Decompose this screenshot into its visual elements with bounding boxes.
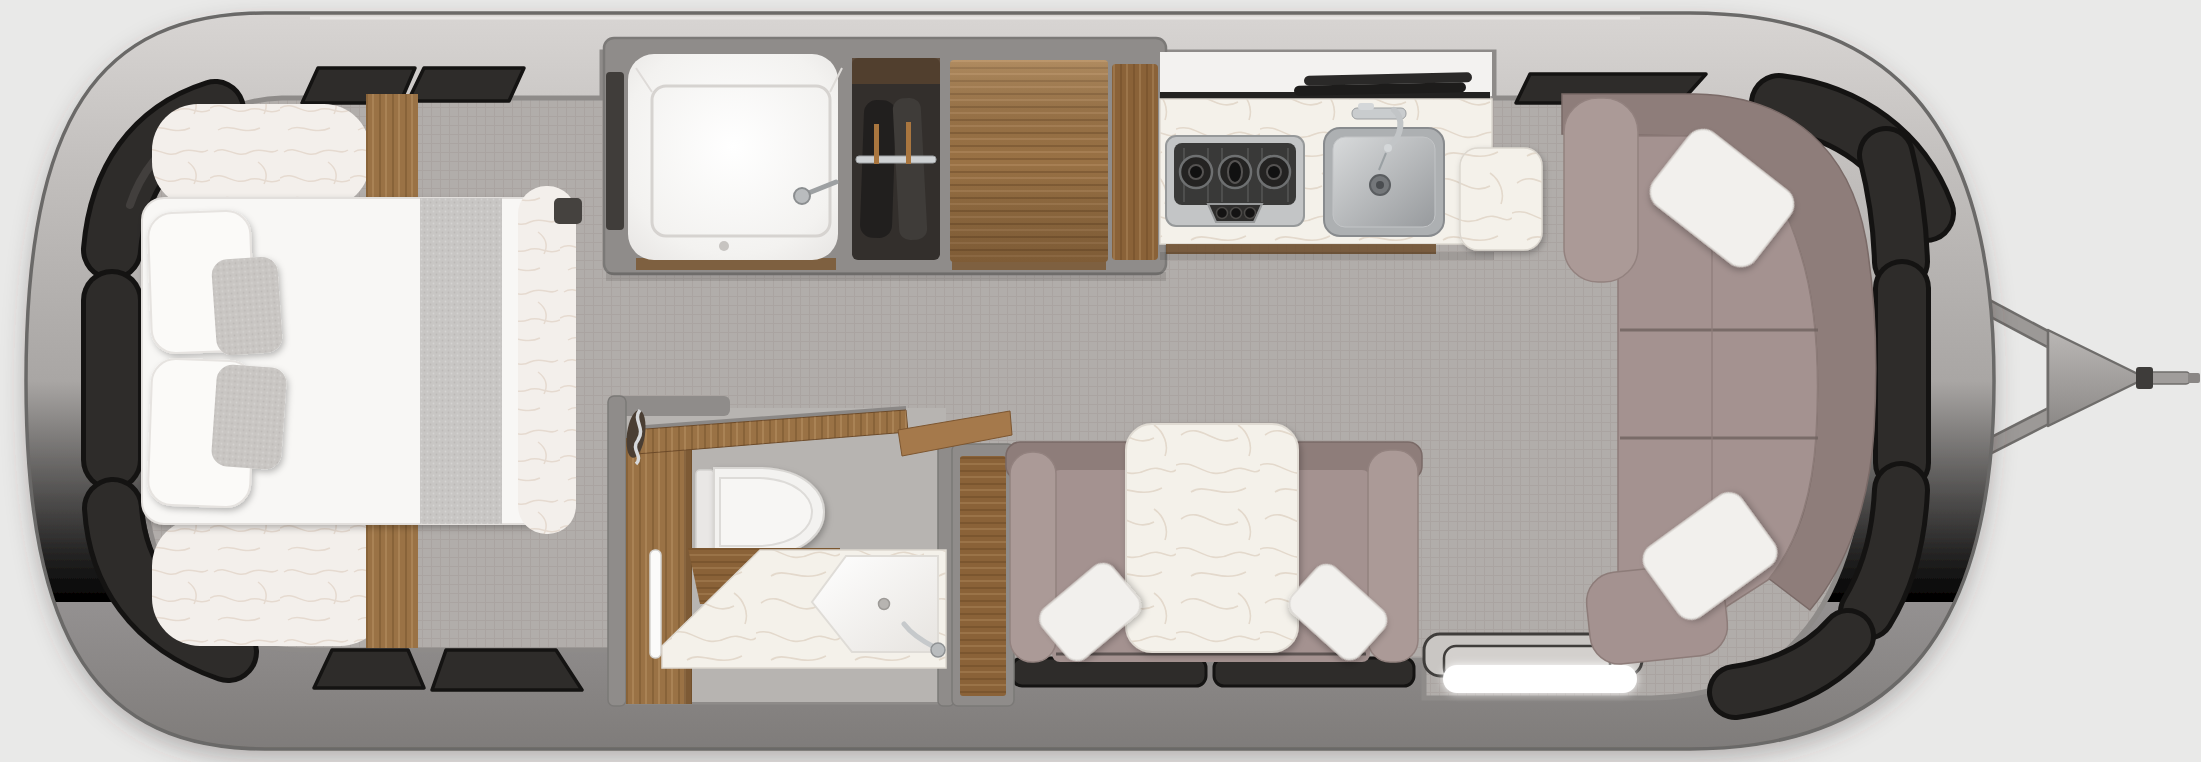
cooktop — [1166, 136, 1304, 226]
shadow-under-cabinets — [606, 272, 1166, 281]
kitchen — [1160, 52, 1542, 254]
vanity-drain — [879, 599, 890, 610]
bed-throw-texture — [420, 198, 502, 524]
vanity-faucet-base — [931, 643, 945, 657]
burner-center-cap — [1228, 161, 1242, 183]
toilet-seat — [720, 478, 812, 546]
sink-drain-center — [1376, 181, 1384, 189]
shadow-under-counter — [1160, 252, 1494, 260]
window-dinette-2 — [1214, 658, 1414, 686]
comforter-drape-top — [152, 104, 370, 208]
window-dinette-1 — [1012, 658, 1206, 686]
linen-cabinet-slats — [960, 456, 1006, 696]
dinette-table — [1126, 424, 1298, 652]
window-top-2 — [408, 68, 524, 101]
hitch-collar — [2136, 367, 2153, 389]
broom-cabinet — [1112, 64, 1158, 260]
shower — [628, 54, 842, 260]
bedside-cabinet-top-grain — [366, 94, 418, 208]
bedside-cabinet-bottom-grain — [366, 514, 418, 648]
shower-drain — [719, 241, 729, 251]
hitch-tip — [2188, 373, 2200, 383]
hanger-2 — [906, 122, 911, 164]
burner-left-cap — [1189, 165, 1203, 179]
window-bottom-1 — [314, 650, 424, 688]
toilet-tank — [696, 470, 714, 554]
mirror-panel — [606, 72, 624, 230]
pantry-shading — [950, 60, 1108, 262]
comforter-foot-edge — [518, 186, 576, 534]
broom-cabinet-grain — [1112, 64, 1158, 260]
burner-right-cap — [1267, 165, 1281, 179]
knob-2 — [1231, 208, 1242, 219]
knob-1 — [1217, 208, 1228, 219]
bedside-dark-panel — [554, 198, 582, 224]
hanging-rail — [856, 156, 936, 163]
sofa-arm-cushion — [1564, 98, 1638, 282]
faucet-tip — [1384, 144, 1392, 152]
window-right-1 — [1886, 155, 1901, 262]
knob-3 — [1245, 208, 1256, 219]
bathroom-left-wall — [608, 396, 626, 706]
pantry-cabinet — [950, 60, 1108, 262]
toilet — [696, 468, 824, 556]
hanger-1 — [874, 124, 879, 164]
wardrobe-shelf-top — [852, 58, 940, 84]
pillow-gray-bottom-texture — [211, 364, 288, 471]
side-table — [1460, 148, 1542, 250]
towel-bar — [650, 550, 661, 658]
wardrobe — [852, 58, 940, 260]
pillow-gray-top-texture — [211, 256, 284, 356]
bathroom — [608, 396, 1014, 706]
comforter-drape-bottom — [152, 518, 388, 646]
dinette — [1006, 424, 1422, 666]
garment-1 — [860, 99, 897, 238]
burners — [1180, 156, 1290, 188]
window-bottom-2 — [432, 650, 582, 690]
top-cabinet-block — [604, 38, 1166, 274]
faucet-lever — [1358, 103, 1374, 110]
floorplan-svg — [0, 0, 2201, 762]
entry-step-illuminated — [1444, 666, 1636, 692]
floorplan-stage — [0, 0, 2201, 762]
showerhead-icon — [794, 188, 810, 204]
